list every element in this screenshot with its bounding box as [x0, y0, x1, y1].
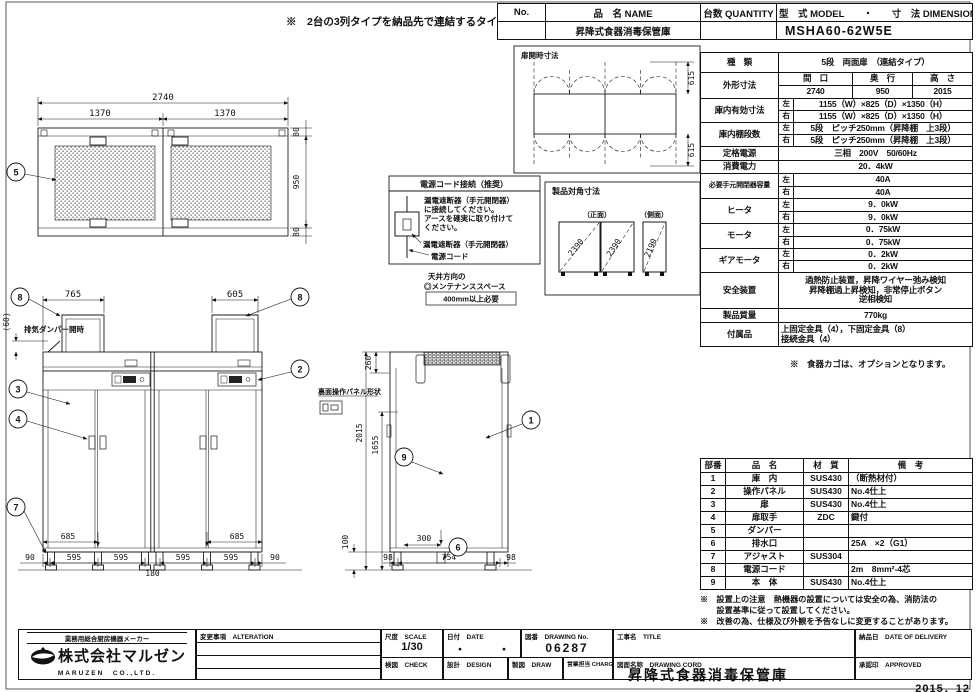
side-dim-300: 300 — [417, 534, 432, 543]
balloon-2: 2 — [297, 365, 302, 375]
header-qty-label: 台数 QUANTITY — [701, 4, 777, 22]
diagonal-box — [545, 182, 700, 295]
spec-safety-label: 安全装置 — [701, 273, 779, 309]
header-model-label: 型 式 MODEL ・ 寸 法 DIMENSION — [777, 4, 973, 22]
balloon-8-right: 8 — [297, 293, 302, 303]
scale-cell: 尺度 SCALE 1/30 — [381, 629, 443, 658]
cord-body-3: アースを確実に取り付けて — [424, 213, 513, 223]
spec-motor-label: モータ — [701, 224, 779, 249]
plan-dim-top: 80 — [292, 127, 301, 137]
drawing-sheet: 2740 1370 1370 80 950 80 5 扉開時寸法 615 615 — [0, 0, 976, 692]
spec-gear-right: 0．2kW — [794, 261, 973, 273]
approved-label: 承認印 APPROVED — [859, 659, 921, 669]
door-open-box — [514, 46, 700, 173]
spec-shelf-label: 庫内棚段数 — [701, 123, 779, 147]
plan-dim-half1: 1370 — [89, 109, 111, 119]
spec-gear-label: ギアモータ — [701, 249, 779, 273]
drawing-name-cell: 図面名称 DRAWING CORD 昇降式食器消毒保管庫 — [613, 657, 855, 680]
cord-cord-label: 電源コード — [431, 251, 469, 261]
check-label: 検図 CHECK — [385, 659, 428, 669]
spec-heater-left: 9．0kW — [794, 199, 973, 212]
maker-name: 株式会社マルゼン — [58, 645, 186, 666]
maker-name-en: MARUZEN CO.,LTD. — [19, 667, 195, 677]
side-dimensions — [348, 352, 516, 578]
cord-title: 電源コード接続（推奨） — [420, 179, 508, 189]
installation-notes: ※ 設置上の注意 熱機器の設置については安全の為、消防法の 設置基準に従って設置… — [700, 594, 972, 627]
side-chain-0: 98 — [383, 553, 393, 562]
delivery-label: 納品日 DATE OF DELIVERY — [859, 631, 947, 641]
drawing-no-cell: 図番 DRAWING No. 06287 — [521, 629, 613, 658]
spec-inner-left-tag: 左 — [779, 99, 794, 111]
spec-breaker-left: 40A — [794, 174, 973, 187]
spec-inner-right-tag: 右 — [779, 111, 794, 123]
spec-shelf-right: 5段 ピッチ250mm（昇降棚 上3段） — [794, 135, 973, 147]
front-chain-3: 180 — [145, 569, 160, 578]
spec-inner-left: 1155（W）×825（D）×1350（H） — [794, 99, 973, 111]
header-table: No. 品 名 NAME 台数 QUANTITY 型 式 MODEL ・ 寸 法… — [497, 3, 973, 40]
spec-outer-d-label: 奥 行 — [853, 73, 913, 86]
parts-row: 6排水口25A ×2（G1） — [701, 538, 973, 551]
spec-heater-right: 9．0kW — [794, 212, 973, 224]
delivery-cell: 納品日 DATE OF DELIVERY — [855, 629, 972, 658]
parts-rmk-header: 備 考 — [849, 459, 973, 473]
draw-label: 製図 DRAW — [512, 659, 551, 669]
plan-view — [38, 128, 288, 236]
front-chain-2: 595 — [114, 553, 129, 562]
spec-watt-value: 20．4kW — [779, 161, 973, 174]
balloon-6: 6 — [455, 543, 460, 553]
diag-title: 製品対角寸法 — [551, 186, 600, 196]
balloon-8-left: 8 — [17, 293, 22, 303]
spec-breaker-right: 40A — [794, 187, 973, 199]
header-name-label: 品 名 NAME — [546, 4, 701, 22]
side-dim-100: 100 — [341, 535, 350, 550]
spec-inner-right: 1155（W）×825（D）×1350（H） — [794, 111, 973, 123]
spec-motor-left: 0．75kW — [794, 224, 973, 237]
option-note: ※ 食器カゴは、オプションとなります。 — [790, 358, 950, 370]
door-open-dim-bottom: 615 — [687, 143, 696, 158]
header-qty-value — [701, 22, 777, 40]
drawing-name-value: 昇降式食器消毒保管庫 — [628, 665, 788, 685]
project-title-label: 工事名 TITLE — [617, 631, 661, 641]
front-dim-damper: (60) — [2, 312, 11, 331]
spec-outer-h-label: 高 さ — [913, 73, 973, 86]
spec-motor-right: 0．75kW — [794, 237, 973, 249]
front-dimensions — [12, 296, 286, 567]
header-no-label: No. — [498, 4, 546, 22]
cord-breaker-label: 漏電遮断器（手元開閉器） — [423, 239, 513, 249]
drawing-no-label: 図番 DRAWING No. — [525, 631, 588, 641]
parts-no-header: 部番 — [701, 459, 726, 473]
drawing-no-value: 06287 — [522, 641, 612, 655]
spec-outer-h: 2015 — [913, 86, 973, 99]
svg-text:5: 5 — [13, 168, 18, 178]
maint-note-3: 400mm以上必要 — [443, 294, 499, 304]
spec-weight-label: 製品質量 — [701, 309, 779, 323]
alteration-cell: 変更事項 ALTERATION — [196, 629, 381, 680]
side-view — [345, 352, 532, 570]
cord-body-1: 漏電遮断器（手元開閉器） — [424, 195, 514, 205]
charge-cell: 営業担当 CHARGE — [563, 657, 613, 680]
plan-dim-total: 2740 — [152, 93, 174, 103]
design-cell: 設計 DESIGN — [443, 657, 508, 680]
side-dim-1655: 1655 — [371, 435, 380, 454]
parts-row: 5ダンパー — [701, 525, 973, 538]
rear-panel-icon — [320, 401, 342, 414]
balloon-9: 9 — [401, 453, 406, 463]
parts-row: 3扉SUS430No.4仕上 — [701, 499, 973, 512]
plan-dim-half2: 1370 — [214, 109, 236, 119]
rear-panel-note: 裏面操作パネル形状 — [317, 387, 382, 396]
plan-dim-depth: 950 — [292, 175, 301, 190]
title-block: 業務用総合厨房機器メーカー 株式会社マルゼン MARUZEN CO.,LTD. … — [18, 629, 972, 680]
note-line-3: ※ 改善の為、仕様及び外観を予告なしに変更することがあります。 — [700, 616, 972, 627]
spec-table: 種 類 5段 両面扉 （連結タイプ） 外形寸法 間 口 奥 行 高 さ 2740… — [700, 52, 973, 347]
spec-kind-label: 種 類 — [701, 53, 779, 73]
balloon-3: 3 — [15, 385, 20, 395]
side-chain-2: 98 — [506, 553, 516, 562]
parts-table: 部番 品 名 材 質 備 考 1庫 内SUS430（断熱材付） 2操作パネルSU… — [700, 458, 973, 590]
diag-front-label: （正面） — [583, 211, 611, 219]
parts-row: 8電源コード2m 8mm²-4芯 — [701, 564, 973, 577]
parts-name-header: 品 名 — [726, 459, 804, 473]
header-model-value: MSHA60-62W5E — [777, 22, 973, 40]
spec-watt-label: 消費電力 — [701, 161, 779, 174]
check-cell: 検図 CHECK — [381, 657, 443, 680]
draw-cell: 製図 DRAW — [508, 657, 563, 680]
front-chain-6: 90 — [270, 553, 280, 562]
maint-note-2: ◎メンテナンススペース — [424, 281, 505, 291]
spec-breaker-label: 必要手元開閉器容量 — [701, 174, 779, 199]
alteration-line — [197, 655, 380, 656]
scale-value: 1/30 — [382, 641, 442, 653]
cord-body-2: に接続してください。 — [424, 204, 499, 214]
spec-acc-label: 付属品 — [701, 323, 779, 347]
spec-shelf-left: 5段 ピッチ250mm（昇降棚 上3段） — [794, 123, 973, 135]
spec-weight-value: 770kg — [779, 309, 973, 323]
spec-outer-w-label: 間 口 — [779, 73, 853, 86]
parts-row: 4扉取手ZDC鍵付 — [701, 512, 973, 525]
spec-power-value: 三相 200V 50/60Hz — [779, 147, 973, 161]
date-cell: 日付 DATE ・ ・ — [443, 629, 521, 658]
alteration-label: 変更事項 ALTERATION — [200, 631, 273, 641]
cord-body-4: ください。 — [424, 223, 462, 232]
date-label: 日付 DATE — [447, 631, 484, 641]
diag-dim-1: 2390 — [566, 237, 585, 258]
front-dim-pipe-right: 605 — [227, 290, 243, 300]
damper-note: 排気ダンパー開時 — [24, 324, 84, 334]
balloon-5: 5 — [7, 163, 56, 181]
side-dim-2015: 2015 — [355, 423, 364, 442]
spec-kind-value: 5段 両面扉 （連結タイプ） — [779, 53, 973, 73]
design-label: 設計 DESIGN — [447, 659, 491, 669]
maruzen-logo-icon — [28, 646, 58, 666]
front-dim-drain-right: 685 — [230, 532, 245, 541]
spec-inner-label: 庫内有効寸法 — [701, 99, 779, 123]
balloon-7: 7 — [13, 503, 18, 513]
door-open-dim-top: 615 — [687, 71, 696, 86]
note-line-2: 設置基準に従って設置してください。 — [700, 605, 972, 616]
alteration-line — [197, 668, 380, 669]
plan-dim-bottom: 80 — [292, 227, 301, 237]
spec-acc-value: 上固定金具（4），下固定金具（8） 接続金具（4） — [779, 323, 973, 347]
door-open-title: 扉開時寸法 — [520, 50, 559, 60]
header-no-value — [498, 22, 546, 40]
diag-dim-3: 2190 — [643, 237, 659, 258]
spec-outer-w: 2740 — [779, 86, 853, 99]
header-name-value: 昇降式食器消毒保管庫 — [546, 22, 701, 40]
balloon-4: 4 — [15, 415, 20, 425]
spec-heater-label: ヒータ — [701, 199, 779, 224]
spec-safety-value: 過熱防止装置，昇降ワイヤー弛み検知 昇降棚過上昇検知，非常停止ボタン 逆相検知 — [779, 273, 973, 309]
balloon-1: 1 — [528, 416, 533, 426]
note-line-1: ※ 設置上の注意 熱機器の設置については安全の為、消防法の — [700, 594, 972, 605]
diag-dim-2: 2390 — [605, 237, 623, 258]
maker-tagline: 業務用総合厨房機器メーカー — [27, 632, 187, 644]
maker-cell: 業務用総合厨房機器メーカー 株式会社マルゼン MARUZEN CO.,LTD. — [18, 629, 196, 680]
parts-row: 2操作パネルSUS430No.4仕上 — [701, 486, 973, 499]
issue-date: 2015．12 — [872, 680, 970, 692]
front-chain-0: 90 — [25, 553, 35, 562]
alteration-line — [197, 642, 380, 643]
spec-power-label: 定格電源 — [701, 147, 779, 161]
parts-row: 1庫 内SUS430（断熱材付） — [701, 473, 973, 486]
front-chain-5: 595 — [224, 553, 239, 562]
parts-mat-header: 材 質 — [804, 459, 849, 473]
front-dim-drain-left: 685 — [61, 532, 76, 541]
maint-note-1: 天井方向の — [428, 271, 466, 281]
front-dim-pipe-left: 765 — [65, 290, 81, 300]
diag-side-label: （側面） — [640, 210, 668, 219]
date-value: ・ ・ — [444, 641, 520, 657]
spec-outer-label: 外形寸法 — [701, 73, 779, 99]
parts-row: 9本 体SUS430No.4仕上 — [701, 577, 973, 590]
front-chain-1: 595 — [67, 553, 82, 562]
parts-row: 7アジャストSUS304 — [701, 551, 973, 564]
spec-safety-line3: 逆相検知 — [781, 295, 970, 305]
spec-acc-line2: 接続金具（4） — [781, 335, 970, 345]
spec-outer-d: 950 — [853, 86, 913, 99]
approved-cell: 承認印 APPROVED — [855, 657, 972, 680]
project-title-cell: 工事名 TITLE — [613, 629, 855, 658]
spec-gear-left: 0．2kW — [794, 249, 973, 261]
charge-label: 営業担当 CHARGE — [567, 659, 617, 668]
scale-label: 尺度 SCALE — [385, 631, 427, 641]
front-chain-4: 595 — [176, 553, 191, 562]
side-dim-260: 260 — [364, 356, 373, 371]
